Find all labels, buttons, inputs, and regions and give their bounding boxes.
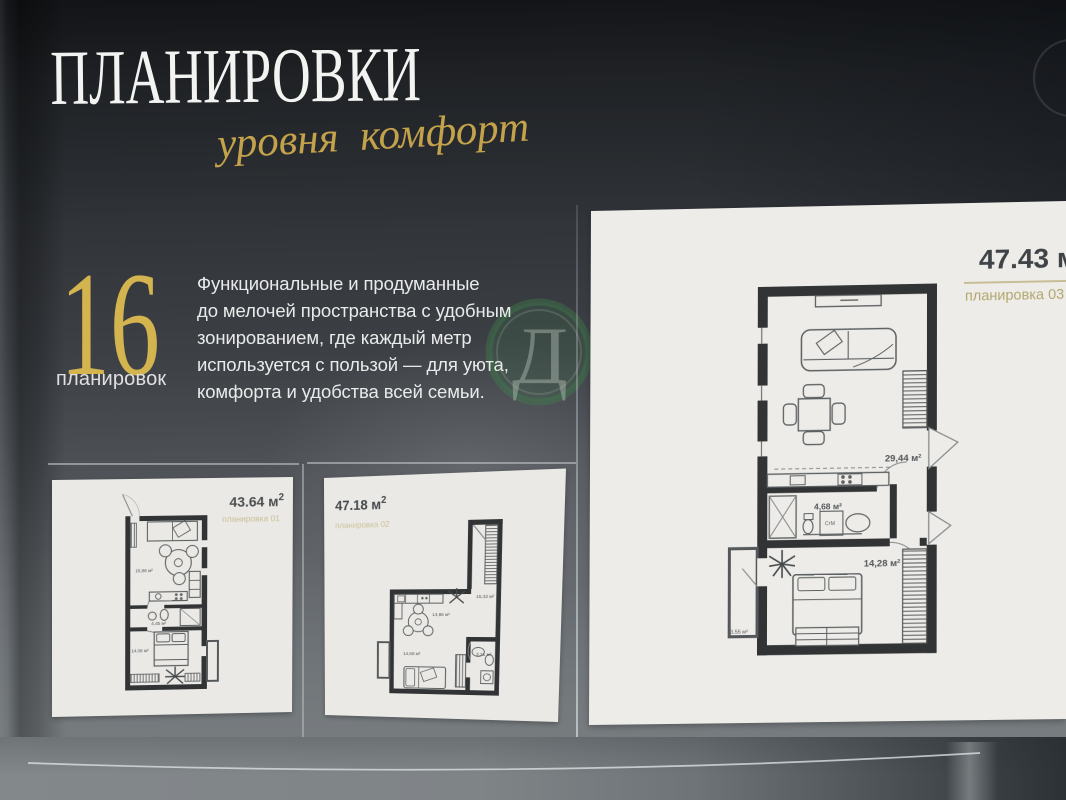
svg-text:29,44 м²: 29,44 м² [885, 452, 921, 464]
svg-text:4,45 м²: 4,45 м² [151, 621, 166, 626]
svg-text:15,86 м²: 15,86 м² [135, 568, 153, 573]
svg-text:3,55 м²: 3,55 м² [730, 629, 748, 635]
svg-text:4,68 м²: 4,68 м² [814, 501, 842, 512]
svg-text:14,06 м²: 14,06 м² [131, 648, 149, 653]
svg-text:Д: Д [512, 310, 568, 401]
svg-text:15,32 м²: 15,32 м² [476, 594, 495, 599]
svg-text:14,28 м²: 14,28 м² [864, 557, 900, 569]
svg-text:3,21 м²: 3,21 м² [476, 652, 492, 657]
svg-text:14,86 м²: 14,86 м² [432, 612, 450, 617]
svg-text:14,69 м²: 14,69 м² [403, 651, 421, 656]
svg-text:СтМ: СтМ [825, 521, 835, 527]
